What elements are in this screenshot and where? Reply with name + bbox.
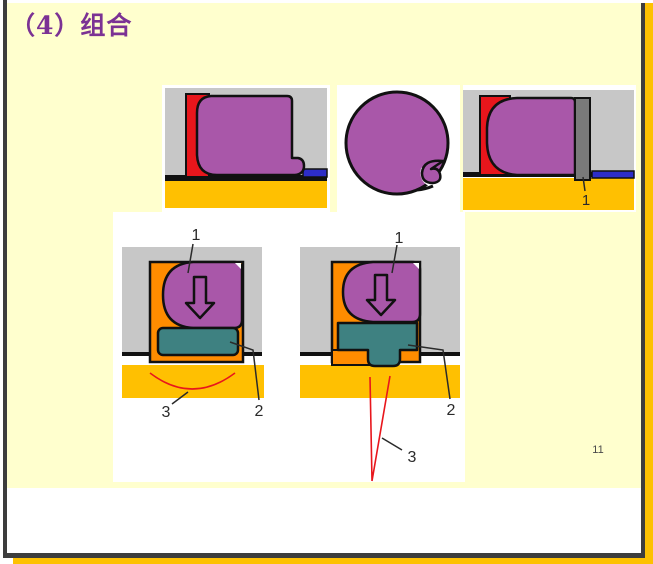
shaft-surface xyxy=(122,365,264,398)
label-3: 3 xyxy=(162,404,171,421)
shaft-surface xyxy=(300,365,460,398)
diagram-backup-ring-combinations: 1 2 3 1 2 xyxy=(113,212,465,482)
shaft-line-left xyxy=(122,352,151,356)
label-3-leader xyxy=(382,438,402,450)
page-title: （4）组合 xyxy=(10,6,132,42)
combination-left: 1 2 3 xyxy=(122,227,264,421)
accent-strip-bottom xyxy=(13,558,653,564)
label-1: 1 xyxy=(582,192,590,209)
combination-right: 1 2 3 xyxy=(300,230,460,481)
shaft-line-right xyxy=(420,352,460,356)
label-2: 2 xyxy=(255,403,264,420)
slide-border-left xyxy=(3,0,7,558)
slide-footer-area xyxy=(7,488,641,553)
accent-strip-right xyxy=(645,3,653,564)
label-1: 1 xyxy=(395,230,404,247)
diagram-oring-circle xyxy=(337,85,460,212)
label-1: 1 xyxy=(192,227,201,244)
shaft-line-right xyxy=(242,352,262,356)
seal-groove-right-svg: 1 xyxy=(463,85,636,212)
label-3: 3 xyxy=(408,449,417,466)
retainer-ring xyxy=(592,171,634,178)
label-2: 2 xyxy=(447,402,456,419)
oring-seal xyxy=(487,98,575,175)
retainer-ring xyxy=(303,169,327,177)
seal-groove-left-svg xyxy=(162,85,330,212)
shaft-surface xyxy=(165,181,327,208)
oring-seal xyxy=(197,96,304,175)
backup-ring xyxy=(158,328,238,355)
oring-circle-svg xyxy=(337,85,460,212)
backup-strip xyxy=(575,98,590,180)
page-number: 11 xyxy=(586,444,610,456)
diagram-seal-groove-right: 1 xyxy=(463,85,636,212)
shaft-line-left xyxy=(300,352,332,356)
oring-hook-tail xyxy=(422,161,443,183)
combinations-svg: 1 2 3 1 2 xyxy=(113,212,465,482)
liner-foot xyxy=(332,350,370,365)
diagram-seal-groove-left xyxy=(162,85,330,212)
shaft-surface xyxy=(463,178,634,210)
